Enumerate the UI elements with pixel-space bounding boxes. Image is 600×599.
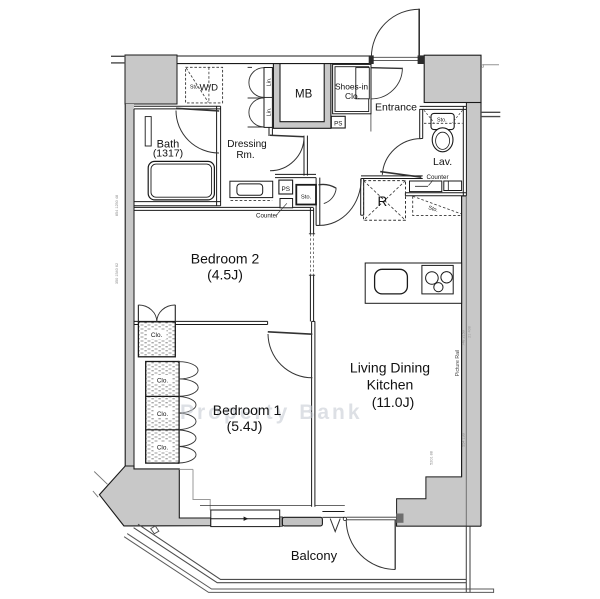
svg-text:(1317): (1317) [153,148,183,160]
svg-text:Clo.: Clo. [345,91,360,101]
svg-text:PS: PS [282,186,291,193]
svg-text:Clo.: Clo. [157,377,169,384]
svg-text:Clo.: Clo. [157,444,169,451]
svg-text:Entrance: Entrance [375,102,417,114]
svg-text:(5.4J): (5.4J) [227,418,263,434]
svg-text:21 408: 21 408 [468,326,472,338]
svg-text:Balcony: Balcony [291,548,338,563]
svg-text:MB: MB [295,89,313,101]
svg-text:Living Dining: Living Dining [350,360,430,376]
svg-text:Rm.: Rm. [236,150,254,161]
svg-text:Dressing: Dressing [227,139,266,150]
svg-text:5201 88: 5201 88 [430,451,434,465]
svg-text:Lav.: Lav. [433,156,452,168]
svg-text:Sto.: Sto. [301,195,312,201]
svg-text:Clo.: Clo. [151,332,163,339]
svg-text:R: R [378,194,388,209]
svg-text:350 1540 62: 350 1540 62 [115,263,119,284]
svg-text:(4.5J): (4.5J) [207,267,243,283]
svg-text:Sto.: Sto. [437,117,447,123]
svg-text:Bedroom 2: Bedroom 2 [191,251,260,267]
svg-text:Shoes-in: Shoes-in [335,82,368,92]
svg-text:Bedroom 1: Bedroom 1 [213,402,282,418]
svg-text:Clo.: Clo. [157,411,169,418]
svg-text:Counter: Counter [427,174,449,181]
svg-text:Lin.: Lin. [267,108,273,117]
svg-text:Lin.: Lin. [267,78,273,87]
svg-text:748 2150: 748 2150 [462,330,466,346]
svg-text:854 1250 48: 854 1250 48 [115,195,119,216]
svg-text:Picture Rail: Picture Rail [455,350,461,377]
svg-text:554 130: 554 130 [462,433,466,447]
svg-text:Sto.: Sto. [190,84,199,90]
svg-text:(11.0J): (11.0J) [372,394,415,410]
svg-text:W/D: W/D [200,82,219,93]
svg-text:PS: PS [334,120,342,127]
svg-text:Counter: Counter [256,212,278,219]
svg-text:Kitchen: Kitchen [367,377,414,393]
